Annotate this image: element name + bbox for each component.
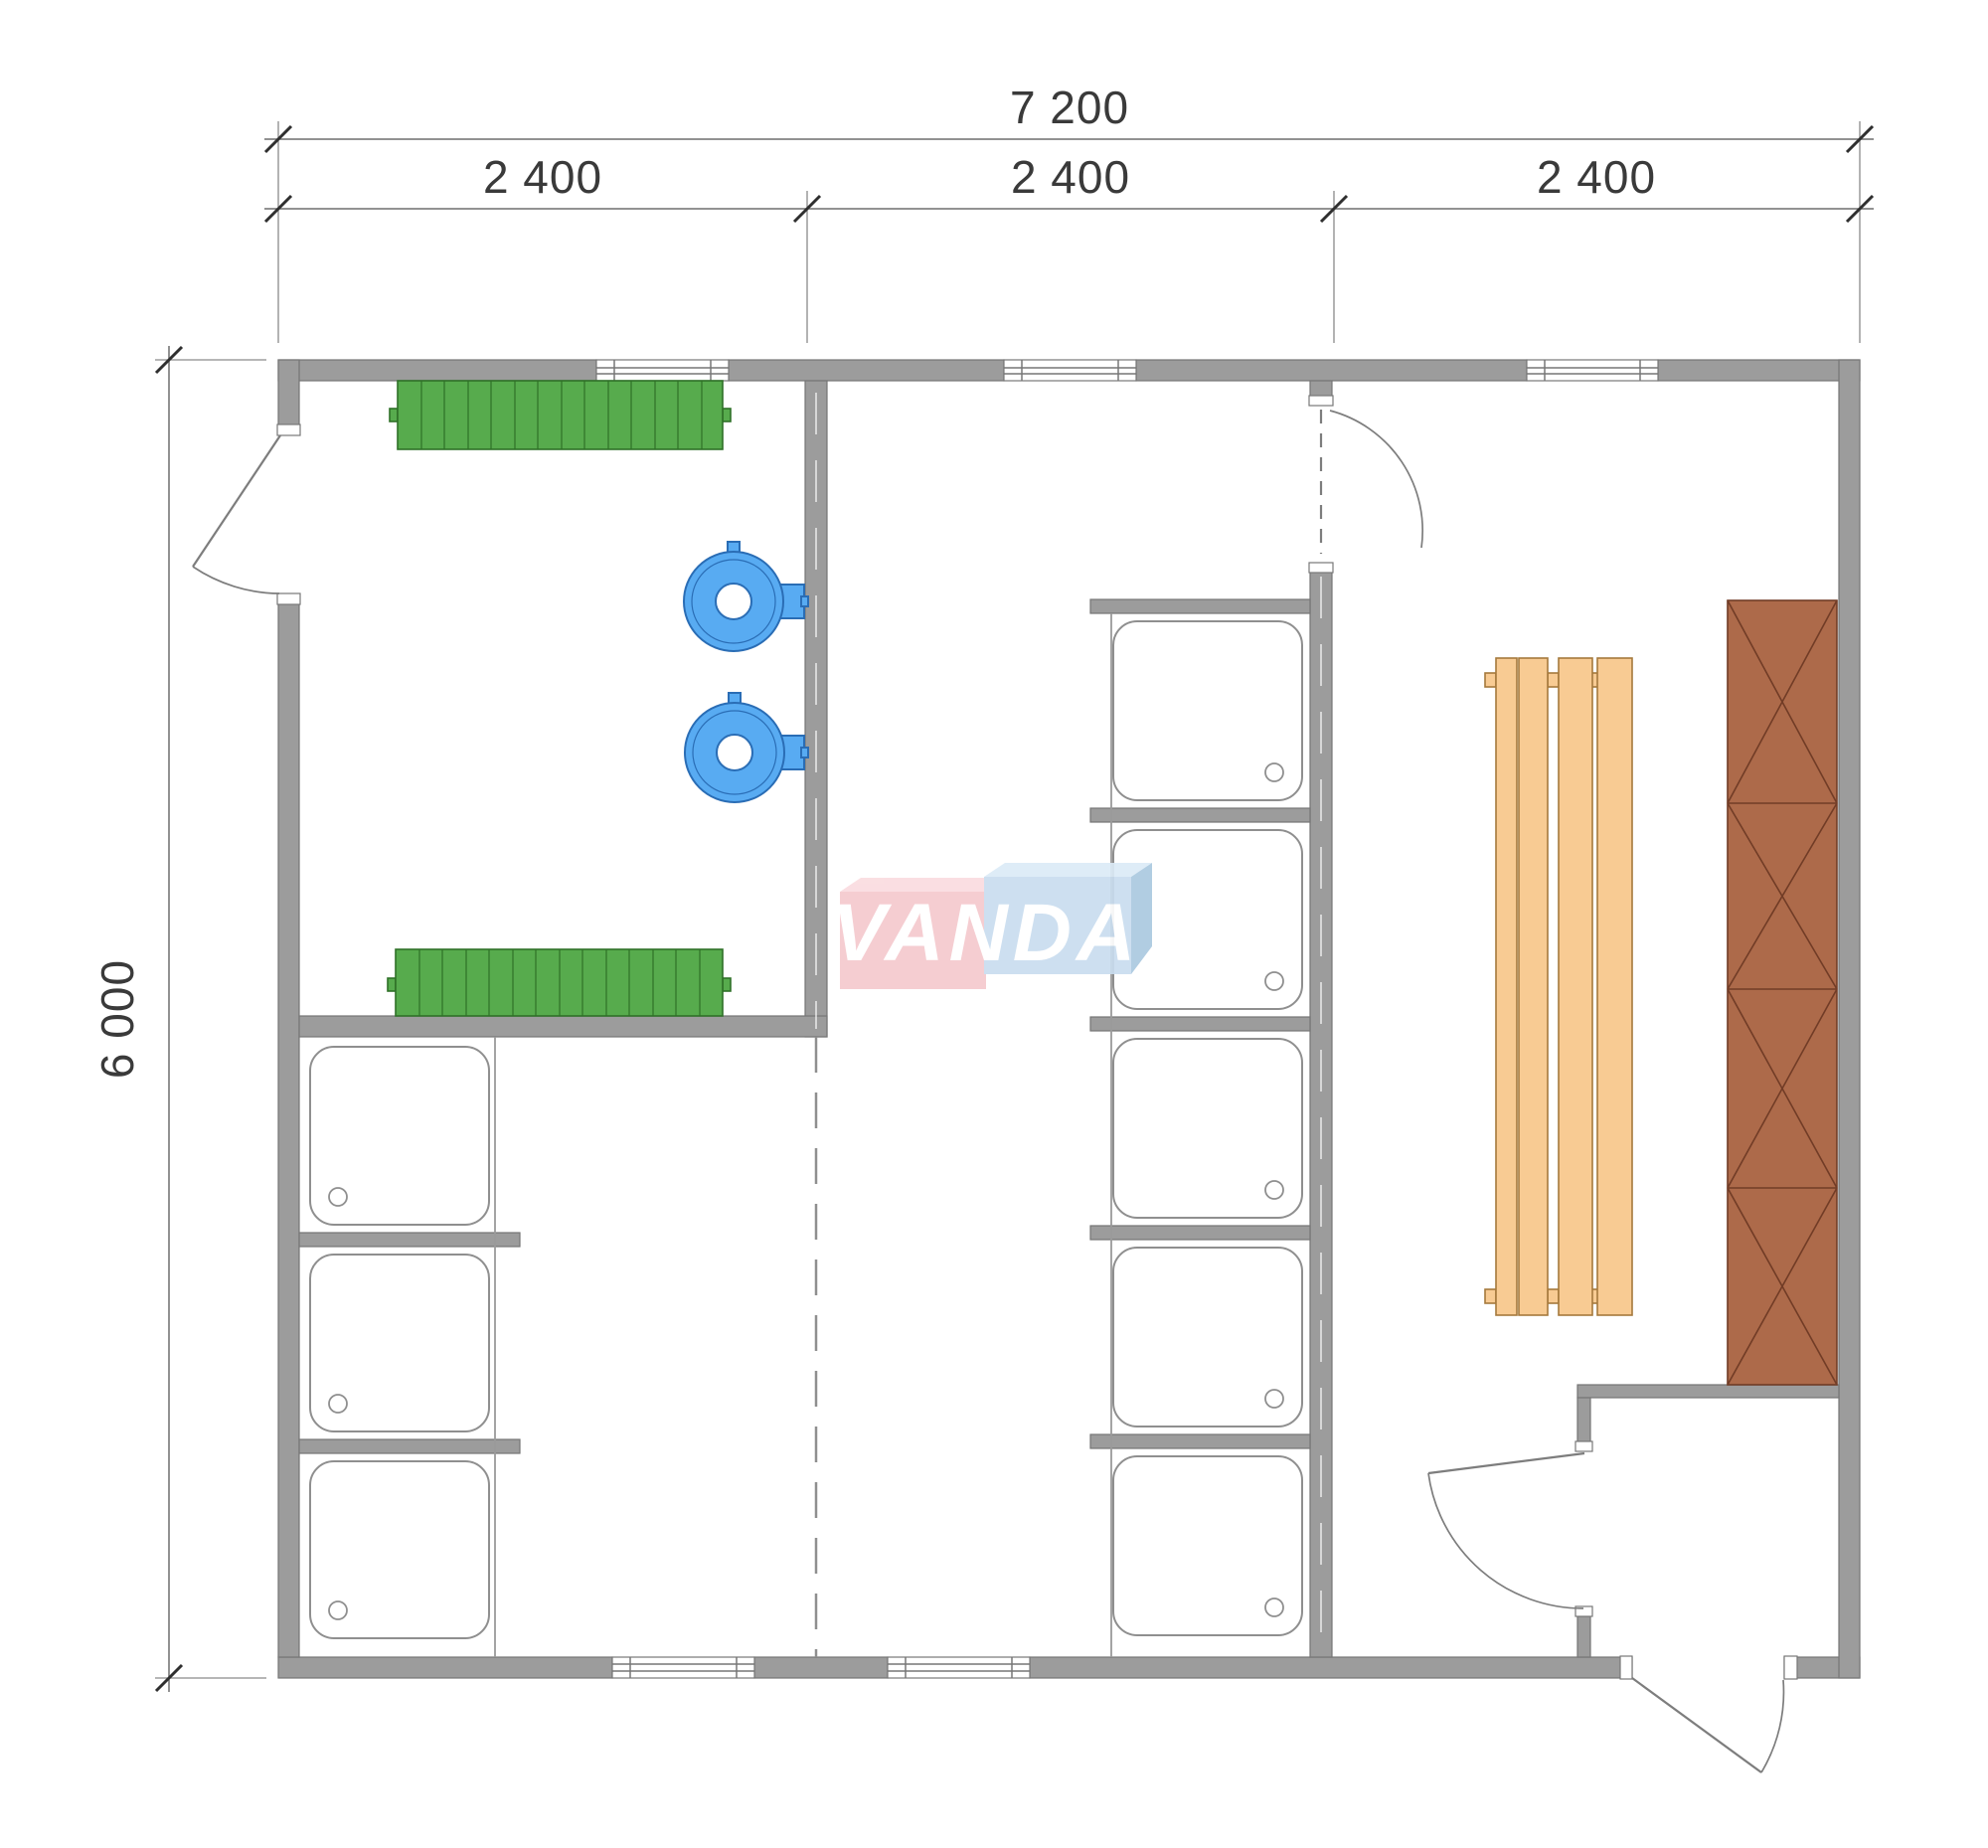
washbasin-1 xyxy=(684,542,808,651)
coat-bench-bottom xyxy=(388,949,731,1016)
wall-top-1 xyxy=(278,360,596,381)
sauna-bench-board xyxy=(1496,658,1517,1315)
window-top-right xyxy=(1527,360,1658,381)
wall-top-3 xyxy=(1136,360,1527,381)
shower-stub-a2 xyxy=(299,1439,520,1453)
shower-stub-a1 xyxy=(299,1233,520,1247)
wall-bottom-2 xyxy=(754,1657,888,1678)
shower-tray xyxy=(1113,1039,1302,1218)
shower-tray xyxy=(310,1255,489,1431)
wall-left-upper xyxy=(278,360,299,430)
wall-top-4 xyxy=(1658,360,1860,381)
dimension-bay-3: 2 400 xyxy=(1537,151,1656,203)
sauna-bench-board xyxy=(1559,658,1592,1315)
coat-bench-top xyxy=(390,381,731,449)
door-sauna-to-vestibule xyxy=(1428,1453,1584,1608)
shower-column-left xyxy=(310,1037,495,1657)
shower-stub-b0 xyxy=(1090,599,1310,613)
watermark-text: VANDA xyxy=(832,888,1140,978)
shower-tray xyxy=(310,1461,489,1638)
dimension-total-width: 7 200 xyxy=(1010,82,1129,133)
floor-plan-drawing: 7 200 2 400 2 400 2 400 6 000 VANDA xyxy=(0,0,1988,1848)
window-top-left xyxy=(596,360,729,381)
watermark-blue-top-face xyxy=(984,863,1152,877)
wall-bottom-3 xyxy=(1030,1657,1632,1678)
vanda-watermark: VANDA xyxy=(832,863,1152,989)
shower-stub-b1 xyxy=(1090,808,1310,822)
window-top-middle xyxy=(1004,360,1136,381)
shower-stub-b2 xyxy=(1090,1017,1310,1031)
washbasin-2 xyxy=(685,693,808,802)
shower-stub-b4 xyxy=(1090,1434,1310,1448)
wall-left-lower xyxy=(278,596,299,1657)
shower-column-middle xyxy=(1111,613,1302,1657)
wall-right xyxy=(1839,360,1860,1678)
dimension-total-depth: 6 000 xyxy=(91,959,143,1079)
vestibule-wall-left-upper xyxy=(1577,1398,1590,1443)
vestibule-wall-top xyxy=(1577,1385,1839,1398)
window-bottom-left xyxy=(612,1657,754,1678)
shower-tray xyxy=(1113,1456,1302,1635)
washbasins xyxy=(684,542,808,802)
door-middle-to-sauna xyxy=(1321,410,1422,554)
shower-tray xyxy=(1113,1248,1302,1427)
sauna-bench-board xyxy=(1597,658,1632,1315)
dimension-bay-1: 2 400 xyxy=(483,151,602,203)
vestibule-wall-left-lower xyxy=(1577,1616,1590,1657)
wall-top-2 xyxy=(729,360,1004,381)
sauna-stove xyxy=(1728,600,1837,1385)
coat-benches xyxy=(388,381,731,1016)
wall-bottom-1 xyxy=(278,1657,612,1678)
sauna-bench xyxy=(1485,658,1632,1315)
dimension-bay-2: 2 400 xyxy=(1011,151,1130,203)
shower-stub-b3 xyxy=(1090,1226,1310,1240)
entrance-door-left xyxy=(193,435,280,593)
exit-door-bottom xyxy=(1632,1678,1783,1772)
window-bottom-middle xyxy=(888,1657,1030,1678)
wall-room-a-bottom xyxy=(299,1016,827,1037)
shower-tray xyxy=(1113,621,1302,800)
floor-plan-canvas: 7 200 2 400 2 400 2 400 6 000 VANDA xyxy=(0,0,1988,1848)
shower-tray xyxy=(310,1047,489,1225)
sauna-bench-board xyxy=(1519,658,1548,1315)
